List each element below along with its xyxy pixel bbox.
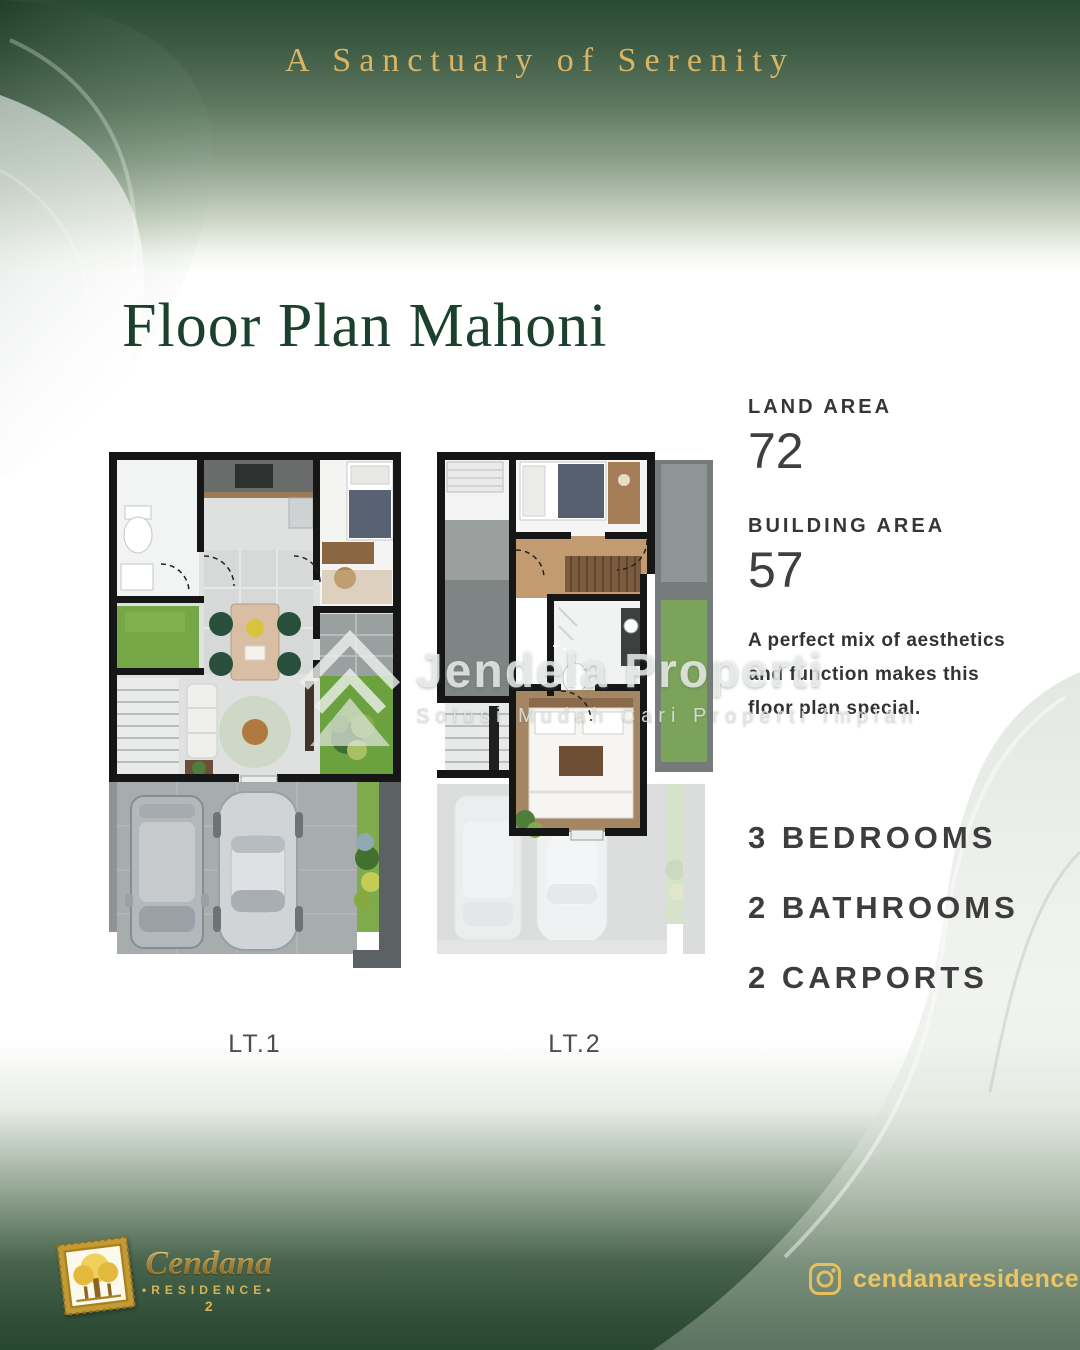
floorplan-lt1-label: LT.1 xyxy=(95,1030,415,1059)
floorplan-lt2-image xyxy=(425,440,725,1015)
land-area-value: 72 xyxy=(748,421,1078,481)
feature-list: 3 BEDROOMS 2 BATHROOMS 2 CARPORTS xyxy=(748,820,1078,996)
feature-bedrooms: 3 BEDROOMS xyxy=(748,820,1078,856)
description-line: floor plan special. xyxy=(748,692,1078,726)
brand-logo: Cendana •RESIDENCE• 2 xyxy=(60,1240,275,1314)
header-band: A Sanctuary of Serenity xyxy=(0,0,1080,272)
instagram-icon xyxy=(808,1262,842,1296)
floorplan-lt2-label: LT.2 xyxy=(425,1030,725,1059)
poster-canvas: A Sanctuary of Serenity Floor Plan Mahon… xyxy=(0,0,1080,1350)
floorplan-description: A perfect mix of aesthetics and function… xyxy=(748,624,1078,726)
instagram-handle[interactable]: cendanaresidence2 xyxy=(853,1265,1080,1294)
floorplan-lt1-image xyxy=(95,438,415,1013)
land-area-label: LAND AREA xyxy=(748,396,1078,419)
cendana-tree-stamp-icon xyxy=(56,1236,136,1316)
description-line: A perfect mix of aesthetics xyxy=(748,624,1078,658)
building-area-value: 57 xyxy=(748,540,1078,600)
feature-carports: 2 CARPORTS xyxy=(748,960,1078,996)
header-tagline: A Sanctuary of Serenity xyxy=(0,42,1080,80)
brand-number: 2 xyxy=(205,1298,213,1314)
brand-name: Cendana xyxy=(145,1248,272,1280)
instagram-link[interactable]: cendanaresidence2 xyxy=(808,1262,1080,1296)
feature-bathrooms: 2 BATHROOMS xyxy=(748,890,1078,926)
brand-type: •RESIDENCE• xyxy=(142,1283,275,1297)
building-area-label: BUILDING AREA xyxy=(748,515,1078,538)
specs-column: LAND AREA 72 BUILDING AREA 57 A perfect … xyxy=(748,396,1078,1030)
page-title: Floor Plan Mahoni xyxy=(122,291,607,362)
description-line: and function makes this xyxy=(748,658,1078,692)
